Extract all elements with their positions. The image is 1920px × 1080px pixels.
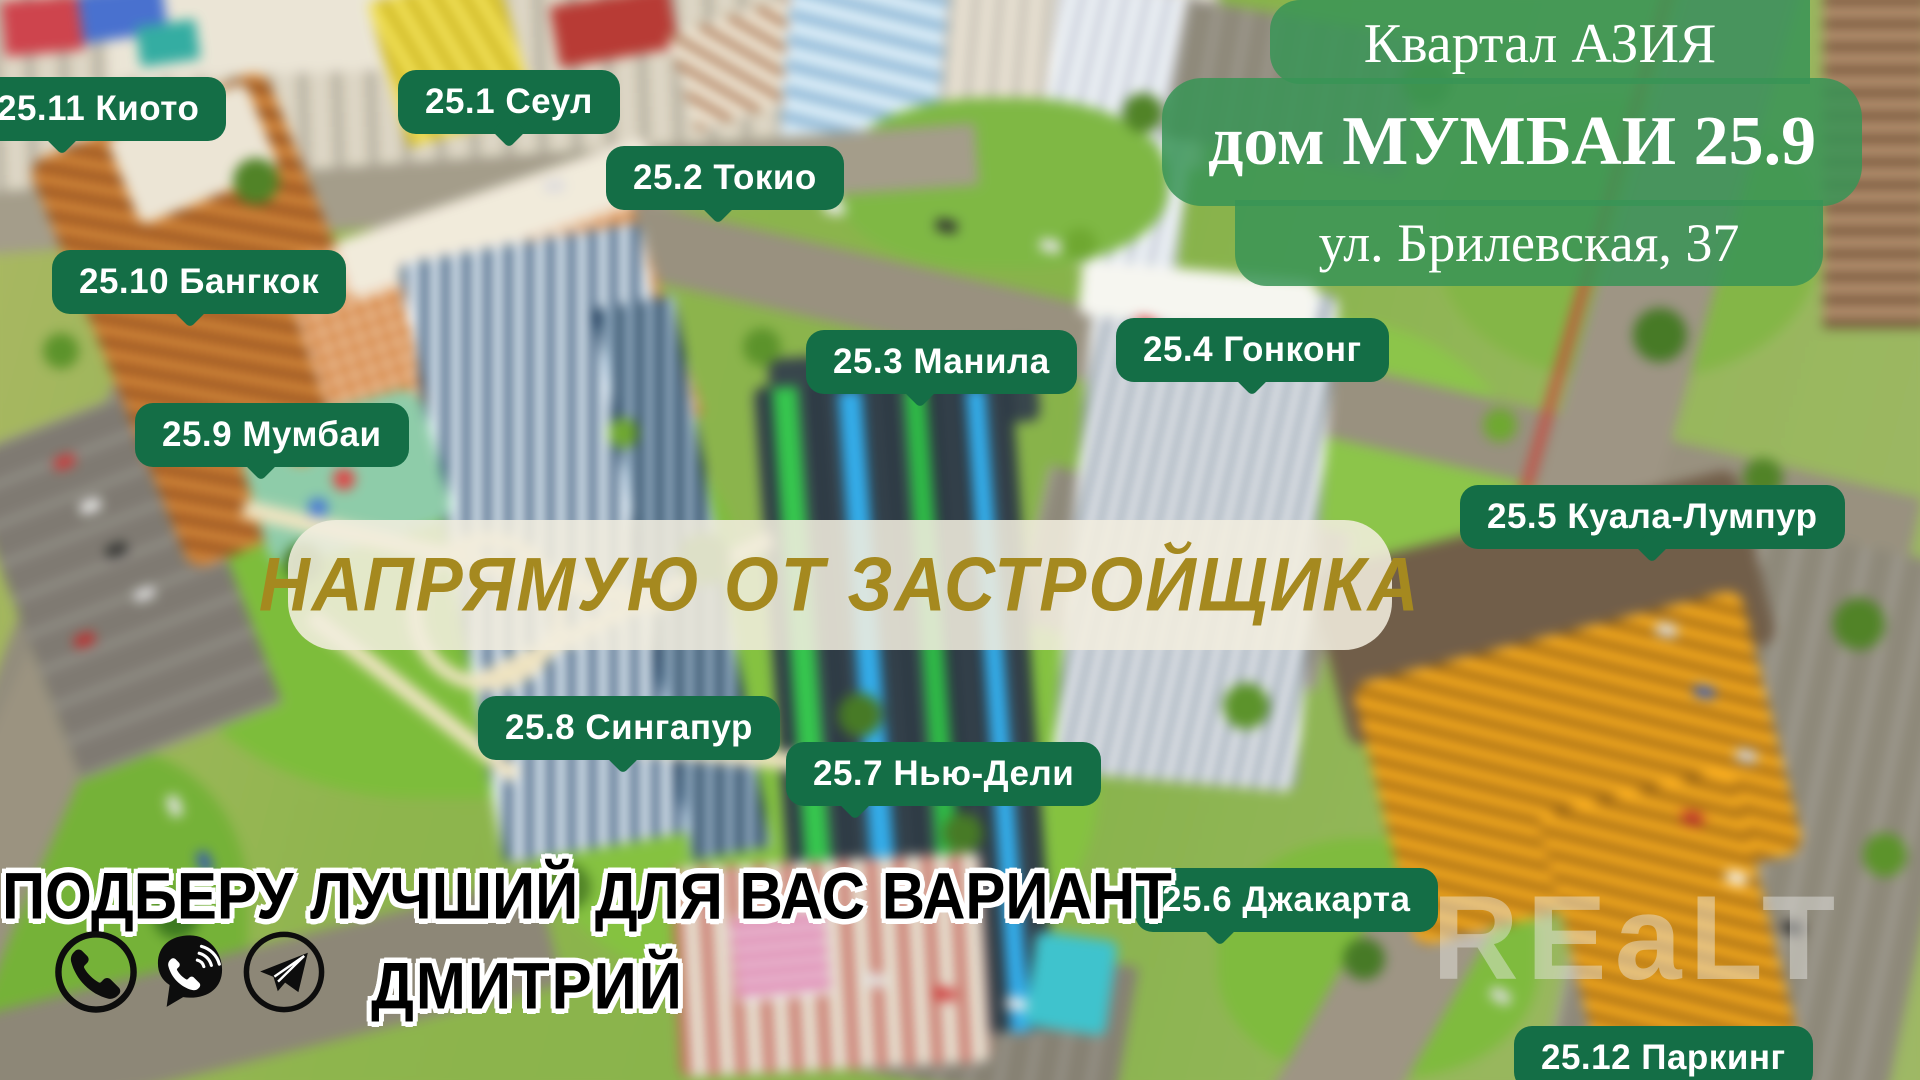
map-label: 25.11 Киото bbox=[0, 77, 226, 141]
map-label: 25.1 Сеул bbox=[398, 70, 620, 134]
developer-banner: НАПРЯМУЮ ОТ ЗАСТРОЙЩИКА bbox=[288, 520, 1392, 650]
map-label: 25.5 Куала-Лумпур bbox=[1460, 485, 1845, 549]
map-label: 25.9 Мумбаи bbox=[135, 403, 409, 467]
phone-icon[interactable] bbox=[52, 928, 140, 1016]
map-label: 25.3 Манила bbox=[806, 330, 1077, 394]
real-estate-flyer: REaLT 25.1 Сеул25.2 Токио25.3 Манила25.4… bbox=[0, 0, 1920, 1080]
map-label: 25.8 Сингапур bbox=[478, 696, 780, 760]
map-label: 25.6 Джакарта bbox=[1135, 868, 1438, 932]
agent-name: ДМИТРИЙ bbox=[325, 948, 730, 1024]
telegram-icon[interactable] bbox=[240, 928, 328, 1016]
map-label: 25.7 Нью-Дели bbox=[786, 742, 1101, 806]
map-label: 25.12 Паркинг bbox=[1514, 1026, 1813, 1080]
contact-icons bbox=[52, 928, 328, 1016]
developer-banner-text: НАПРЯМУЮ ОТ ЗАСТРОЙЩИКА bbox=[259, 542, 1421, 629]
map-label: 25.4 Гонконг bbox=[1116, 318, 1389, 382]
viber-icon[interactable] bbox=[146, 928, 234, 1016]
map-label: 25.2 Токио bbox=[606, 146, 844, 210]
footer-headline: ПОДБЕРУ ЛУЧШИЙ ДЛЯ ВАС ВАРИАНТ bbox=[2, 858, 1080, 934]
map-label: 25.10 Бангкок bbox=[52, 250, 346, 314]
